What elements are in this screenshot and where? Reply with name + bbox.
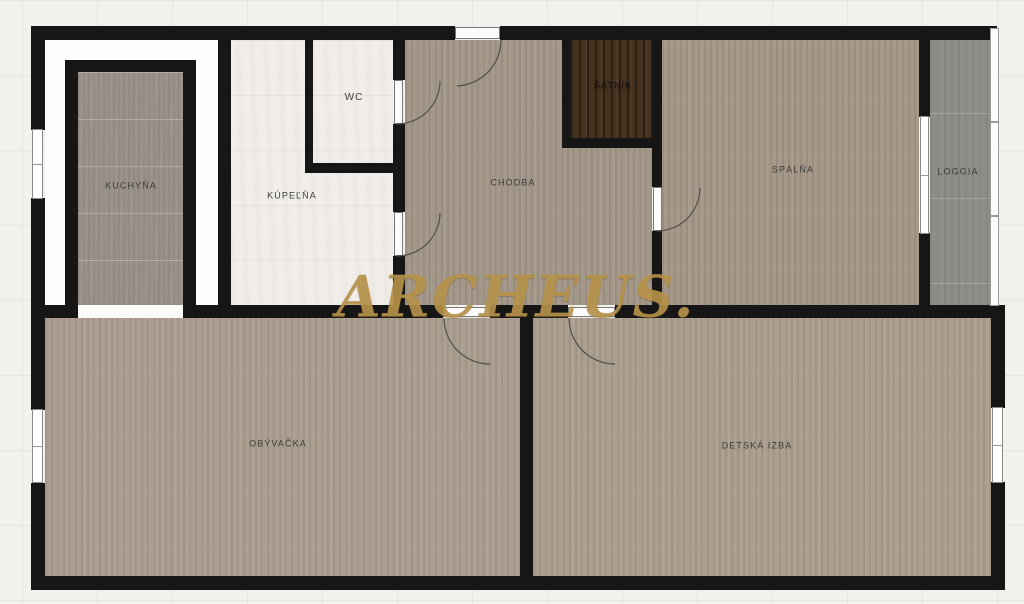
- wall-kitchen-left: [65, 60, 78, 318]
- floor-plan: KUCHYŇA KÚPEĽŇA WC CHODBA ŠATNÍK SPÁLŇA …: [0, 0, 1024, 604]
- entrance-door: [455, 27, 500, 39]
- wall-kitchen-right: [183, 60, 196, 318]
- wall-top-left: [31, 26, 455, 40]
- room-label-bedroom: SPÁLŇA: [772, 166, 814, 175]
- room-label-bathroom: KÚPEĽŇA: [267, 192, 317, 201]
- wc-door: [394, 80, 403, 124]
- loggia-railing: [990, 28, 999, 306]
- wall-right-1: [991, 305, 1005, 408]
- room-label-kitchen: KUCHYŇA: [105, 182, 157, 191]
- room-label-loggia: LOGGIA: [937, 168, 978, 177]
- room-label-hallway: CHODBA: [490, 179, 535, 188]
- wall-hall-west-1: [393, 40, 405, 80]
- wall-closet-left: [562, 40, 571, 148]
- wall-hall-bedroom-1: [652, 26, 662, 187]
- room-label-closet: ŠATNÍK: [594, 82, 632, 91]
- window-bedroom-loggia: [920, 116, 929, 234]
- room-label-livingroom: OBÝVAČKA: [249, 440, 307, 449]
- wall-left-1: [31, 26, 45, 130]
- wall-hall-west-2: [393, 124, 405, 212]
- room-label-wc: WC: [345, 93, 364, 103]
- bedroom-door: [653, 187, 662, 231]
- bathroom-door: [394, 212, 403, 256]
- wall-closet-bottom: [562, 138, 662, 148]
- wall-wc-bottom: [305, 163, 405, 173]
- window-left-upper: [32, 129, 43, 199]
- wall-left-3: [31, 483, 45, 590]
- wall-bathroom-left: [218, 40, 231, 318]
- wall-bedroom-loggia-2: [919, 233, 930, 318]
- room-label-kidsroom: DETSKÁ IZBA: [722, 442, 793, 451]
- wall-living-kids: [520, 305, 533, 590]
- wall-kitchen-top: [65, 60, 196, 72]
- window-left-lower: [32, 409, 43, 483]
- wall-left-2: [31, 198, 45, 410]
- wall-right-2: [991, 482, 1005, 590]
- wall-bottom: [31, 576, 1005, 590]
- window-right-kidsroom: [992, 407, 1003, 483]
- kitchen-opening-threshold: [78, 305, 183, 318]
- watermark-logo: ARCHEUS.: [337, 264, 696, 331]
- wall-wc-left: [305, 40, 313, 173]
- wall-bedroom-loggia-1: [919, 26, 930, 117]
